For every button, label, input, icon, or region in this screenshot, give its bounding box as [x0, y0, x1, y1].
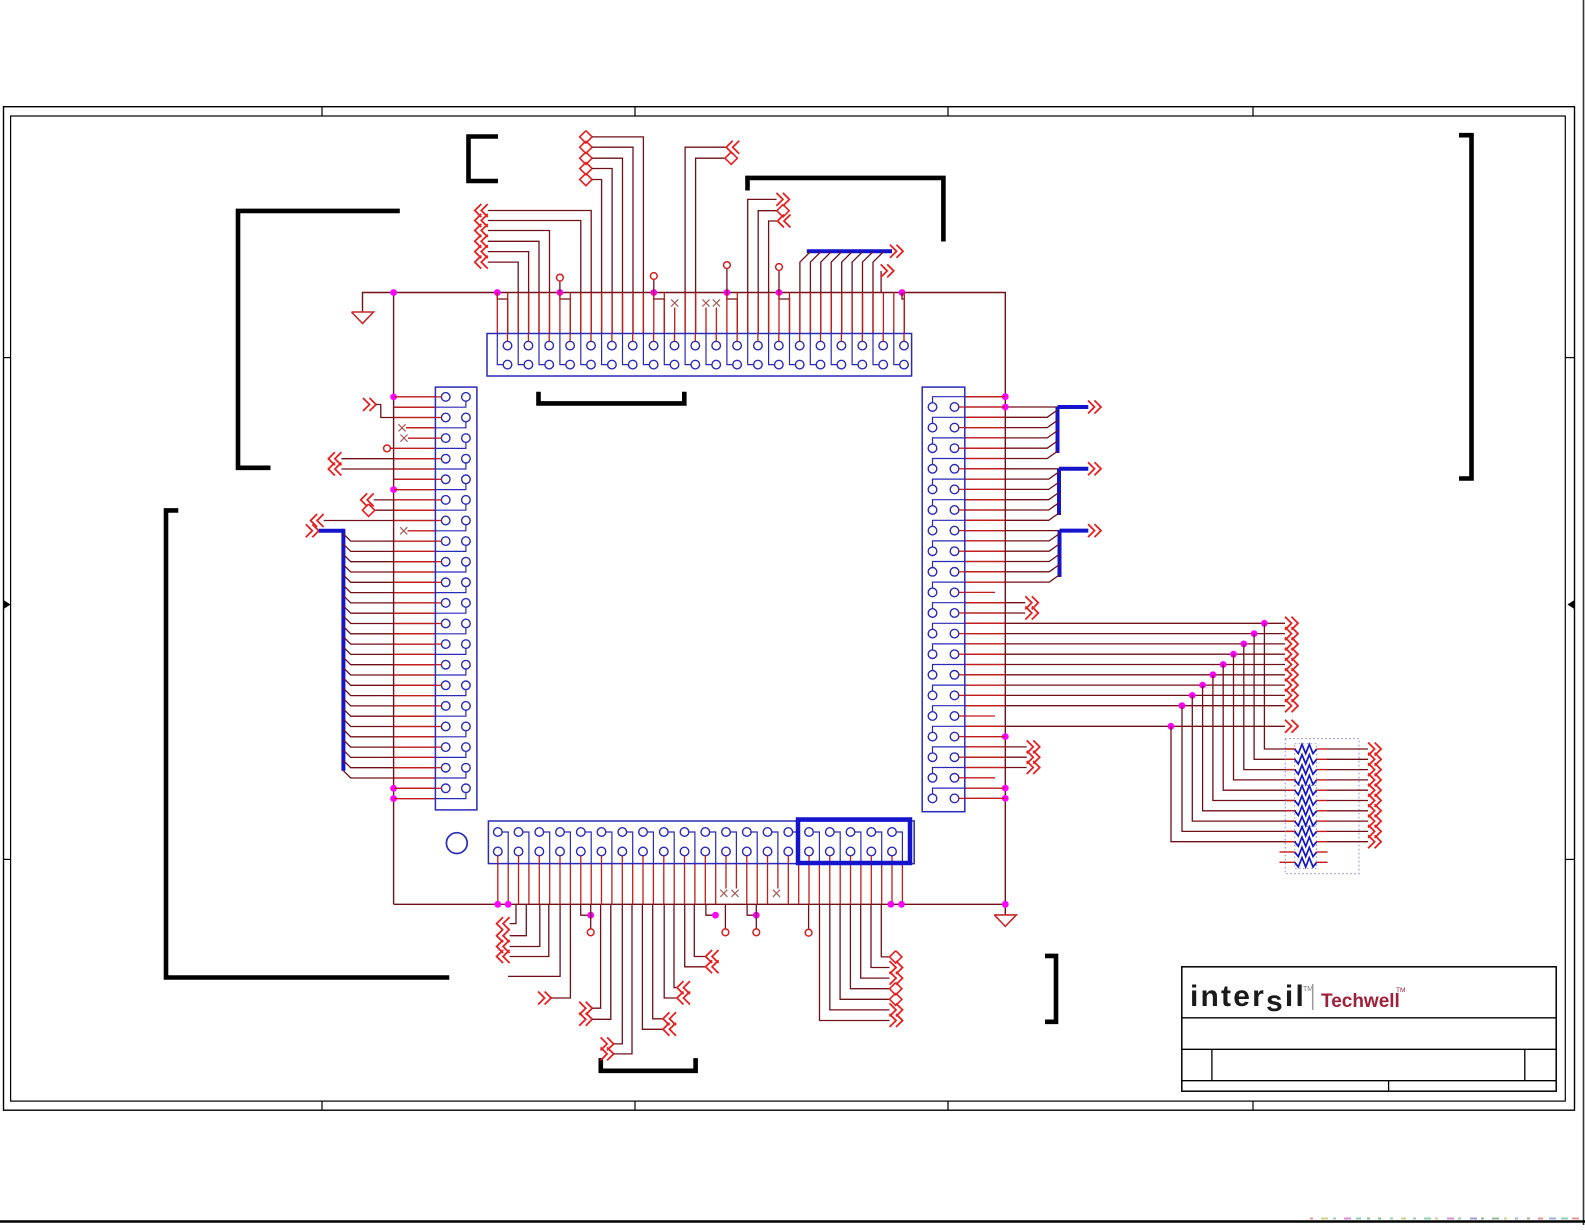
svg-text:intersil: intersil [1190, 980, 1306, 1018]
svg-text:TM: TM [1303, 986, 1313, 993]
svg-text:TM: TM [1396, 987, 1405, 994]
svg-text:Techwell: Techwell [1321, 991, 1400, 1012]
